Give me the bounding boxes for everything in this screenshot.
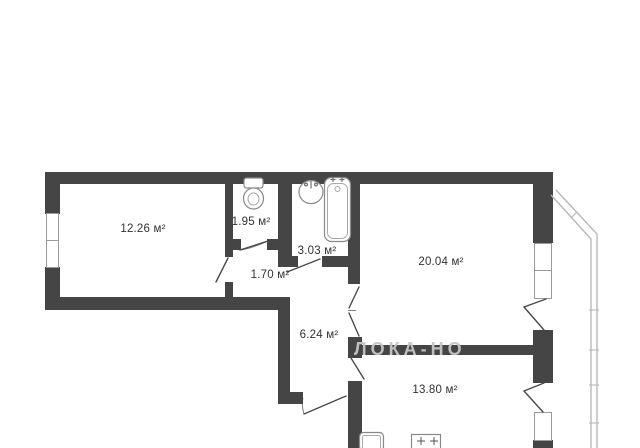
wall-left-upper: [45, 184, 60, 214]
door-living-leaf-lower: [349, 313, 359, 336]
toilet-bowl: [244, 188, 264, 209]
kitchen-sink-outer: [360, 433, 384, 448]
wall-right-top: [533, 172, 553, 243]
door-balcony-living-leaf: [524, 299, 546, 307]
room-label-living: 20.04 м²: [418, 256, 463, 268]
balcony-inner-line: [551, 195, 591, 448]
walls: [45, 172, 553, 448]
wall-wc-bath-divider: [278, 184, 292, 267]
door-room-main-leaf: [216, 258, 228, 282]
door-wc-leaf: [240, 241, 268, 250]
door-balcony-kitchen-leaf: [524, 383, 544, 391]
wall-right-bottom: [533, 440, 553, 448]
room-label-kitchen: 13.80 м²: [412, 384, 457, 396]
wall-living-kitchen-divider: [362, 345, 533, 355]
wall-right-mid: [533, 330, 553, 383]
wall-corridor-stub: [348, 337, 362, 358]
wall-corridor-left: [278, 297, 290, 392]
window-kitchen-icon: [535, 413, 552, 441]
toilet-icon: [244, 178, 264, 209]
floor-plan: 12.26 м² 1.95 м² 3.03 м² 1.70 м² 20.04 м…: [0, 0, 640, 448]
bath-sink-icon: [299, 181, 323, 204]
wall-bottom-left: [45, 297, 290, 310]
door-balcony-living-arc-line: [524, 307, 544, 330]
floor-plan-drawing: [0, 0, 640, 448]
kitchen-sink-icon: [360, 433, 384, 448]
room-label-bathroom: 3.03 м²: [298, 245, 337, 257]
room-label-wc: 1.95 м²: [232, 216, 271, 228]
stove-icon: [412, 435, 441, 448]
door-corridor-leaf: [304, 396, 346, 414]
door-kitchen-leaf: [351, 358, 364, 379]
wall-room-main-right-lower: [225, 282, 233, 298]
wall-top: [45, 172, 553, 184]
wall-corridor-bottom: [278, 392, 303, 404]
bathtub-icon: [325, 178, 351, 242]
balcony-tick-icon: [571, 212, 577, 218]
door-balcony-kitchen-arc-line: [524, 391, 543, 412]
wall-bath-bottom-right: [322, 256, 348, 267]
room-label-hall: 1.70 м²: [251, 269, 290, 281]
toilet-tank: [244, 178, 263, 188]
balcony-outline: [551, 190, 599, 448]
wall-bath-bottom-left: [292, 256, 298, 267]
room-label-main: 12.26 м²: [120, 223, 165, 235]
door-living-leaf-upper: [349, 287, 359, 308]
door-corridor-arc: [302, 398, 304, 414]
room-label-corridor: 6.24 м²: [300, 329, 339, 341]
door-swings: [216, 241, 546, 414]
wall-wc-bottom-left: [225, 239, 241, 250]
